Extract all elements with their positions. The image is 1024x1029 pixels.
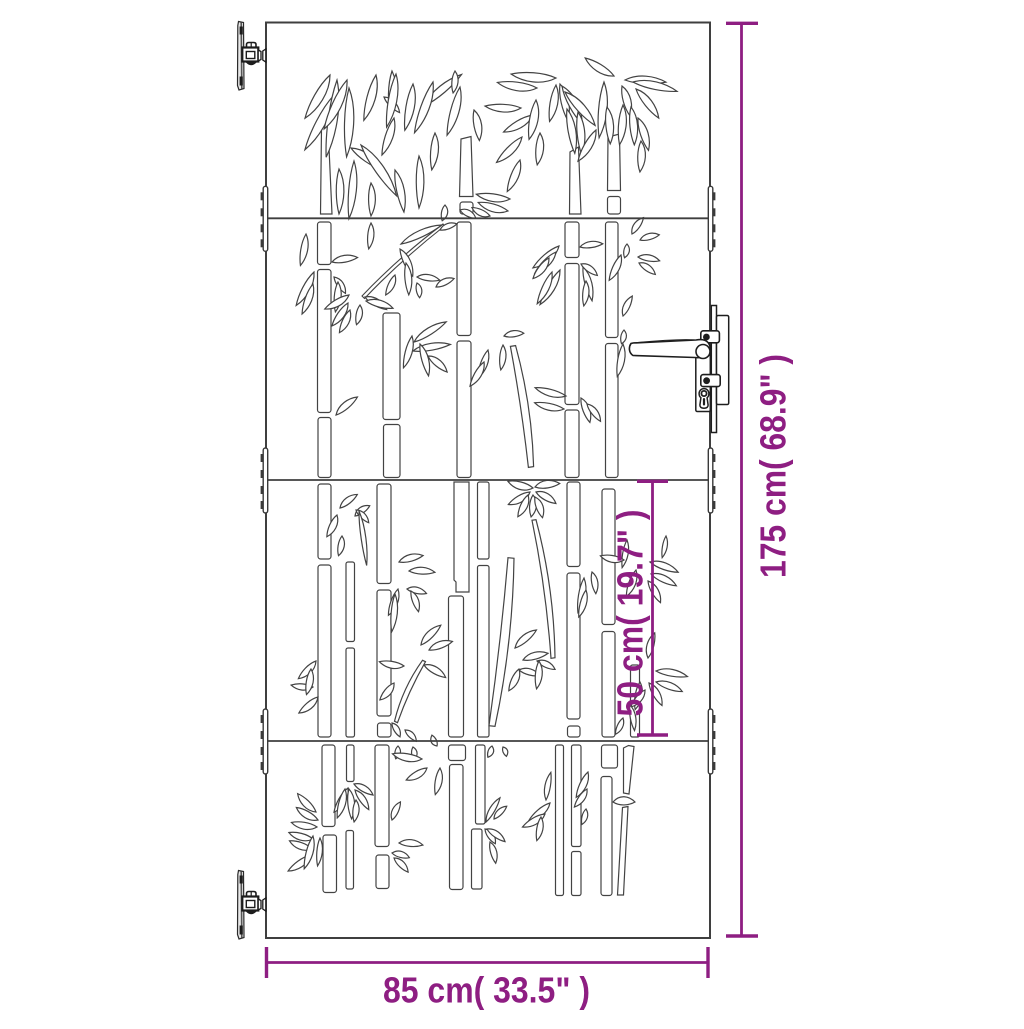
svg-text:85 cm( 33.5" ): 85 cm( 33.5" ) bbox=[383, 970, 590, 1011]
svg-text:175 cm( 68.9" ): 175 cm( 68.9" ) bbox=[753, 354, 794, 578]
svg-text:50 cm( 19.7" ): 50 cm( 19.7" ) bbox=[610, 510, 651, 717]
